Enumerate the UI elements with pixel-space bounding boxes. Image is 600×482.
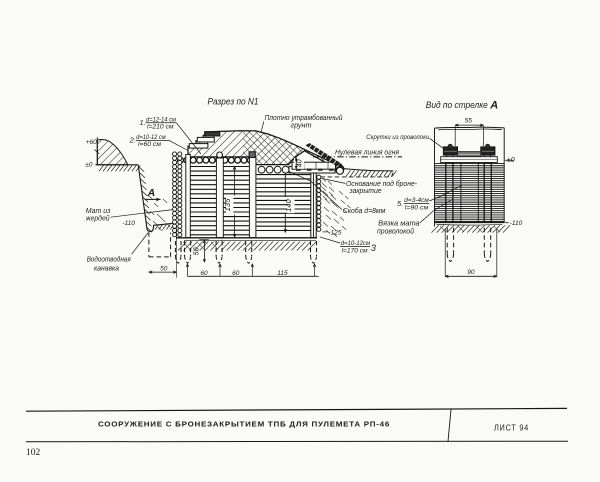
svg-text:50: 50: [160, 266, 168, 273]
svg-text:102: 102: [26, 448, 41, 458]
svg-text:1.: 1.: [140, 118, 146, 127]
svg-text:Вязка мата: Вязка мата: [378, 221, 420, 228]
svg-text:Скоба d=8мм: Скоба d=8мм: [343, 207, 386, 215]
svg-text:Скрутки из проволоки: Скрутки из проволоки: [366, 134, 429, 141]
svg-text:140: 140: [284, 199, 293, 212]
svg-text:Плотно утрамбованный: Плотно утрамбованный: [265, 114, 343, 122]
svg-text:А: А: [147, 187, 156, 199]
svg-text:l=60 см: l=60 см: [138, 141, 162, 148]
svg-text:115: 115: [277, 270, 288, 277]
svg-text:2.: 2.: [129, 136, 136, 145]
svg-text:А: А: [489, 100, 498, 112]
svg-text:40: 40: [296, 159, 303, 167]
svg-text:Вид по стрелке: Вид по стрелке: [426, 100, 488, 111]
svg-text:Разрез по N1: Разрез по N1: [208, 97, 259, 108]
svg-text:55: 55: [465, 117, 473, 124]
svg-text:50: 50: [194, 247, 201, 255]
svg-text:60: 60: [200, 270, 208, 277]
svg-text:грунт: грунт: [291, 123, 312, 130]
svg-text:Нулевая линия огня: Нулевая линия огня: [335, 149, 399, 156]
svg-text:5.: 5.: [397, 199, 403, 208]
svg-text:закрытие: закрытие: [349, 188, 382, 195]
svg-text:Основание под броне-: Основание под броне-: [346, 180, 418, 188]
svg-text:Мат из: Мат из: [86, 208, 111, 215]
svg-text:СООРУЖЕНИЕ С БРОНЕЗАКРЫТИЕМ: СООРУЖЕНИЕ С БРОНЕЗАКРЫТИЕМ ТПБ ДЛЯ ПУЛЕ…: [98, 420, 390, 429]
svg-text:жердей: жердей: [85, 215, 110, 223]
svg-text:канавка: канавка: [94, 266, 119, 273]
svg-text:Водоотводная: Водоотводная: [87, 255, 131, 263]
svg-text:±0: ±0: [507, 157, 515, 164]
svg-text:135: 135: [223, 198, 232, 211]
svg-text:-110: -110: [123, 220, 136, 227]
svg-text:проволокой: проволокой: [377, 227, 414, 235]
svg-text:3: 3: [371, 243, 376, 253]
svg-text:d=3-4см: d=3-4см: [404, 197, 429, 204]
svg-text:d=12-14 см: d=12-14 см: [146, 116, 177, 123]
svg-text:+60: +60: [86, 139, 97, 146]
svg-text:l=90 см: l=90 см: [405, 205, 429, 212]
svg-text:ЛИСТ 94: ЛИСТ 94: [494, 424, 529, 433]
svg-text:d=10-12см: d=10-12см: [341, 240, 371, 247]
svg-text:-125: -125: [329, 229, 342, 236]
svg-text:±0: ±0: [85, 162, 93, 169]
svg-text:90: 90: [467, 269, 475, 276]
svg-text:l=210 см: l=210 см: [147, 124, 174, 131]
svg-text:-110: -110: [510, 220, 523, 227]
svg-text:60: 60: [232, 270, 240, 277]
svg-text:l=170 см: l=170 см: [342, 247, 369, 254]
